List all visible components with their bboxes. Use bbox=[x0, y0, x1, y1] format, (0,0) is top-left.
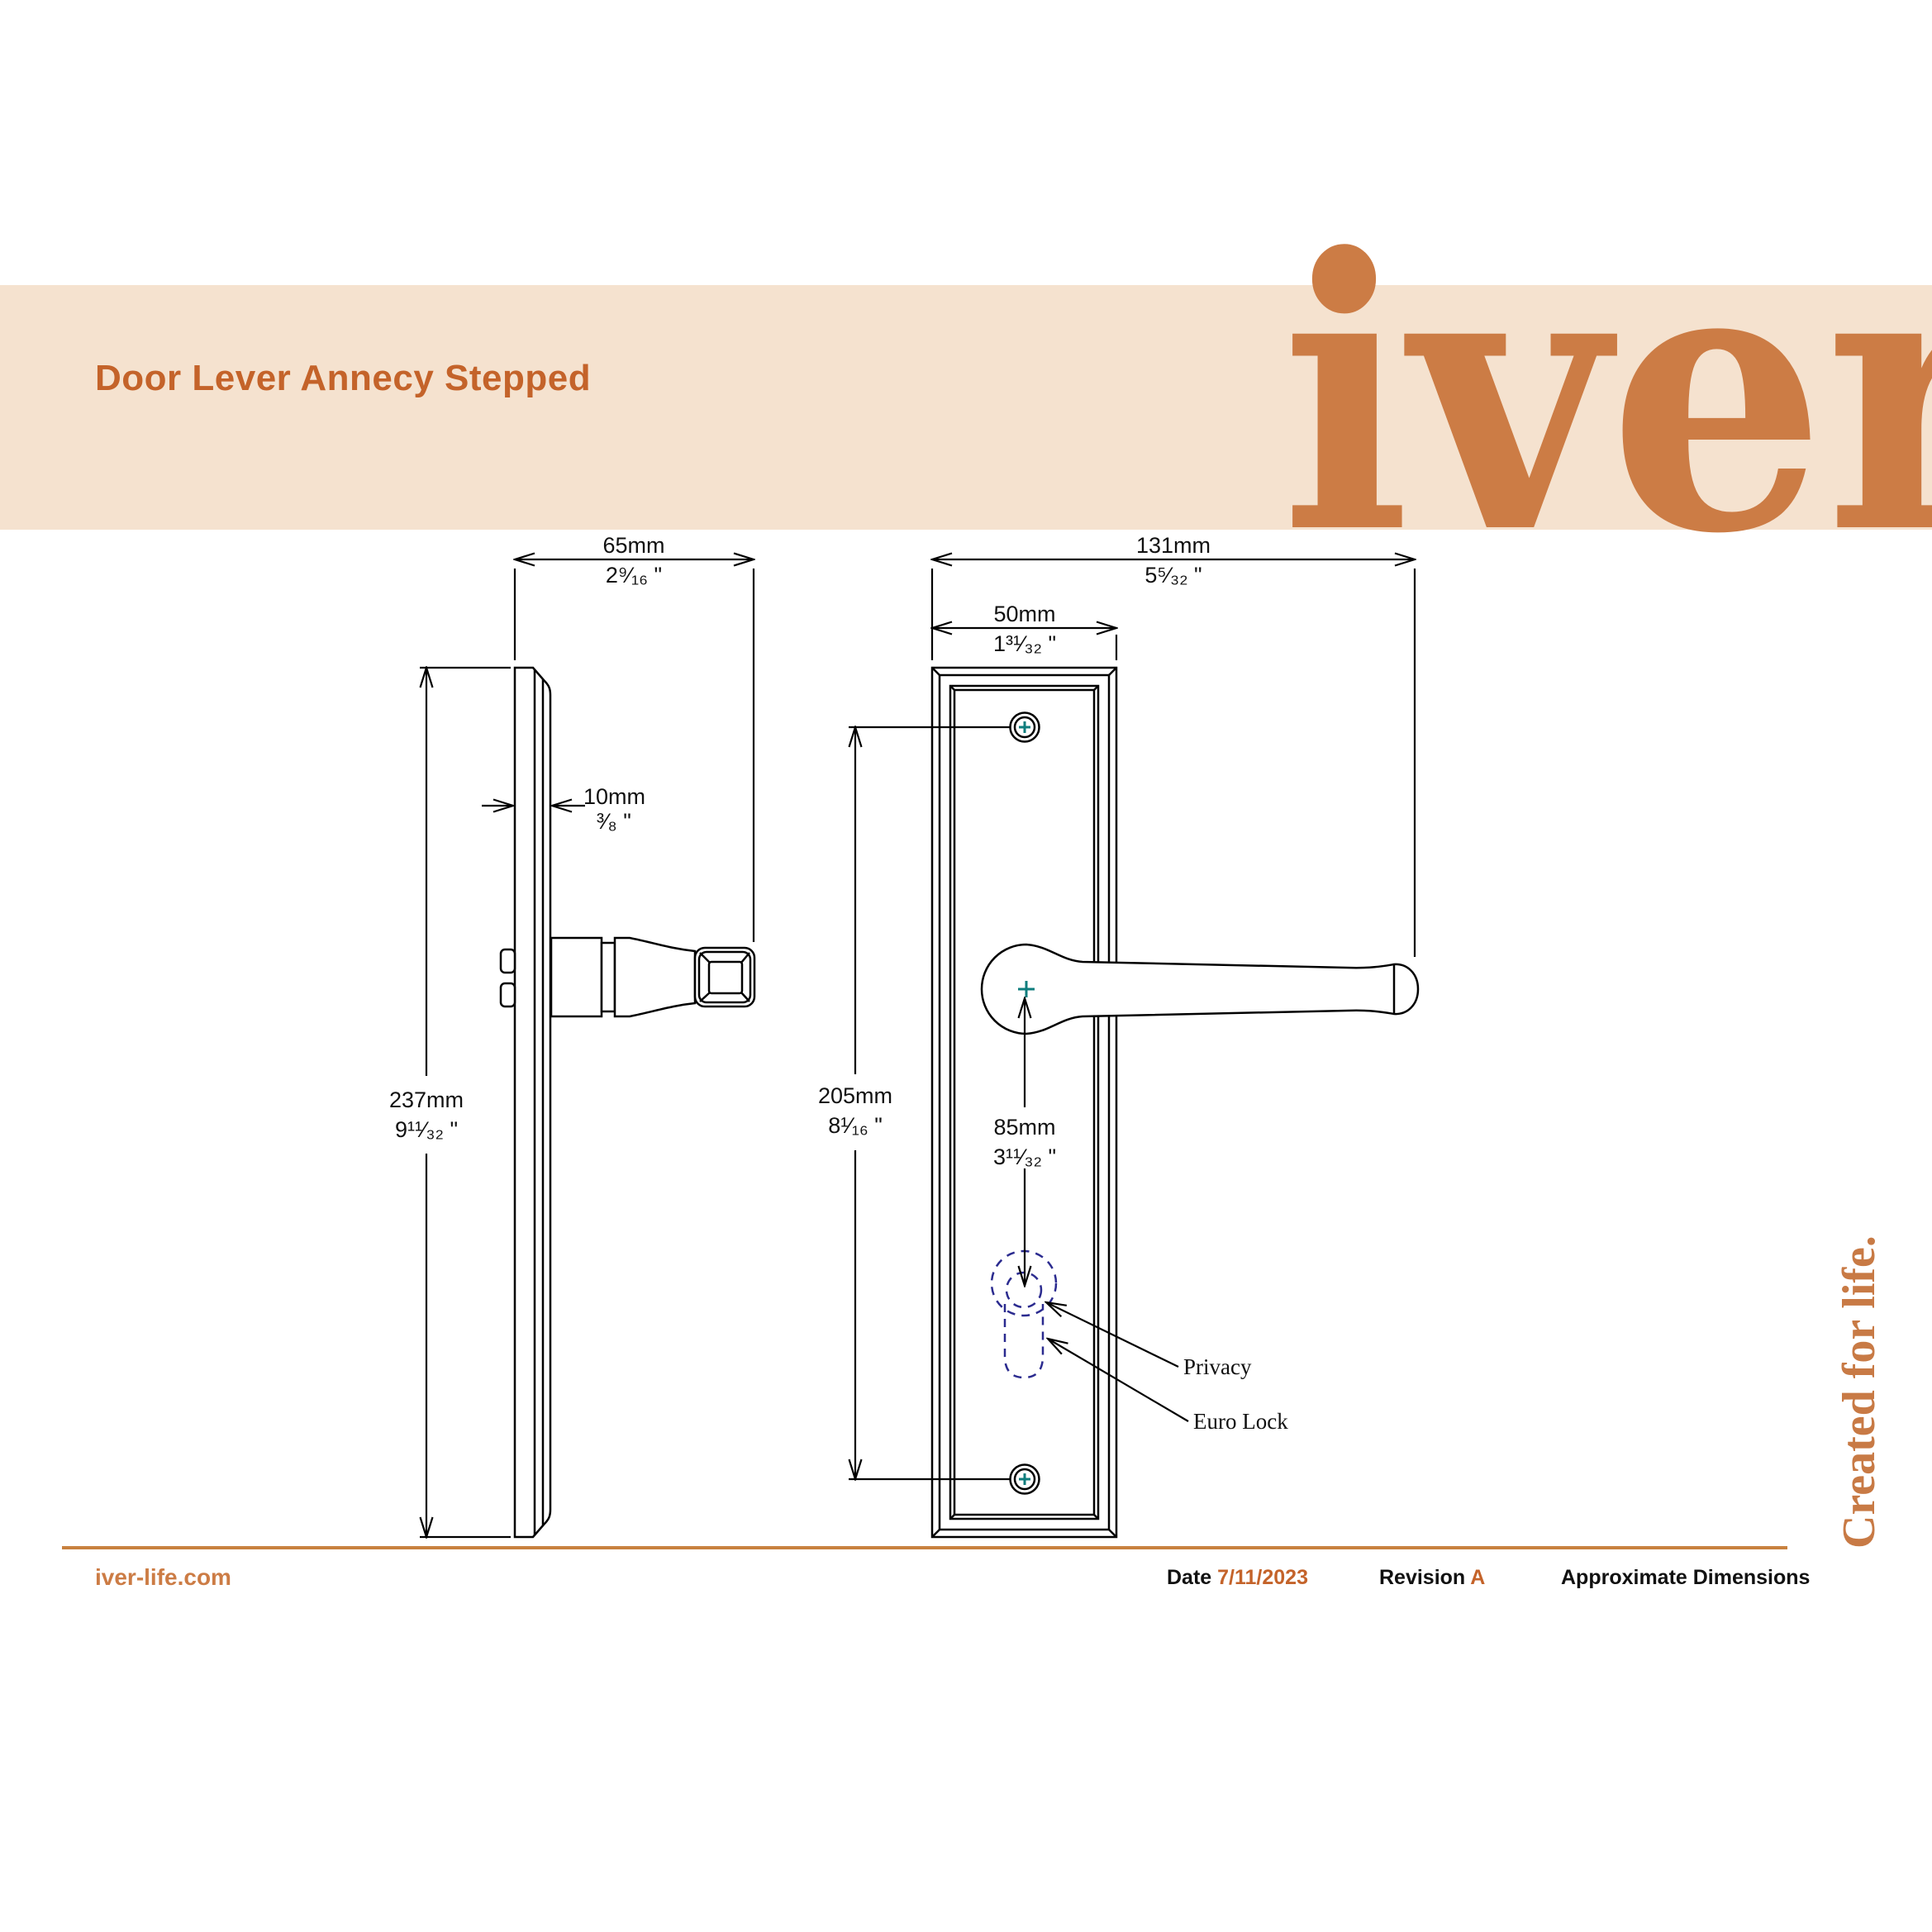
screw-bottom bbox=[1011, 1465, 1040, 1494]
dim-131mm-inches: 5⁵⁄₃₂ " bbox=[1144, 563, 1202, 588]
revision-label: Revision bbox=[1379, 1566, 1465, 1589]
page-title: Door Lever Annecy Stepped bbox=[95, 358, 591, 399]
privacy-label: Privacy bbox=[1183, 1354, 1252, 1379]
revision-value: A bbox=[1470, 1566, 1485, 1589]
spec-sheet-page: Door Lever Annecy Stepped iver bbox=[0, 0, 1932, 1932]
dim-10mm-label: 10mm bbox=[583, 784, 645, 809]
dim-237mm-label: 237mm bbox=[389, 1087, 464, 1112]
header-banner: Door Lever Annecy Stepped iver bbox=[0, 285, 1932, 530]
dim-85mm-label: 85mm bbox=[993, 1115, 1055, 1140]
front-lever-outline bbox=[982, 945, 1418, 1034]
side-lug-top bbox=[501, 949, 515, 973]
date-value: 7/11/2023 bbox=[1217, 1566, 1308, 1589]
side-lever-collar bbox=[551, 938, 602, 1016]
website-link[interactable]: iver-life.com bbox=[95, 1564, 231, 1591]
dim-237mm: 237mm 9¹¹⁄₃₂ " bbox=[389, 668, 511, 1537]
side-lug-bottom bbox=[501, 983, 515, 1006]
side-plate-outline bbox=[515, 668, 550, 1537]
footer-revision: Revision A bbox=[1379, 1566, 1485, 1590]
dim-50mm-inches: 1³¹⁄₃₂ " bbox=[993, 631, 1056, 656]
dim-131mm-label: 131mm bbox=[1136, 533, 1211, 558]
dim-205mm-label: 205mm bbox=[818, 1083, 892, 1108]
dim-205mm: 205mm 8¹⁄₁₆ " bbox=[818, 727, 892, 1479]
date-label: Date bbox=[1167, 1566, 1211, 1589]
dim-65mm-label: 65mm bbox=[602, 533, 664, 558]
footer-divider-rule bbox=[62, 1546, 1787, 1549]
dim-10mm: 10mm ³⁄₈ " bbox=[482, 784, 645, 834]
euro-lock-label: Euro Lock bbox=[1193, 1409, 1288, 1434]
dim-10mm-inches: ³⁄₈ " bbox=[597, 809, 631, 834]
side-lever-neck bbox=[602, 943, 615, 1011]
technical-drawing: 65mm 2⁹⁄₁₆ " 237mm 9¹¹⁄₃₂ " 10mm ³⁄₈ " bbox=[0, 529, 1932, 1562]
dim-65mm-inches: 2⁹⁄₁₆ " bbox=[606, 563, 662, 588]
footer-date: Date 7/11/2023 bbox=[1167, 1566, 1308, 1590]
iver-logo: iver bbox=[1264, 285, 1932, 530]
footer-note: Approximate Dimensions bbox=[1561, 1566, 1810, 1590]
front-lever bbox=[982, 945, 1418, 1034]
side-lever-knob-inner bbox=[709, 962, 742, 993]
dim-237mm-inches: 9¹¹⁄₃₂ " bbox=[395, 1117, 458, 1142]
tagline-vertical-text: Created for life. bbox=[1836, 1235, 1882, 1549]
dim-50mm-label: 50mm bbox=[993, 602, 1055, 626]
screw-top bbox=[1011, 713, 1040, 742]
dim-85mm-inches: 3¹¹⁄₃₂ " bbox=[993, 1144, 1056, 1169]
side-lever-flare bbox=[615, 938, 695, 1016]
dim-205mm-inches: 8¹⁄₁₆ " bbox=[828, 1113, 883, 1138]
dim-50mm: 50mm 1³¹⁄₃₂ " bbox=[932, 602, 1116, 660]
